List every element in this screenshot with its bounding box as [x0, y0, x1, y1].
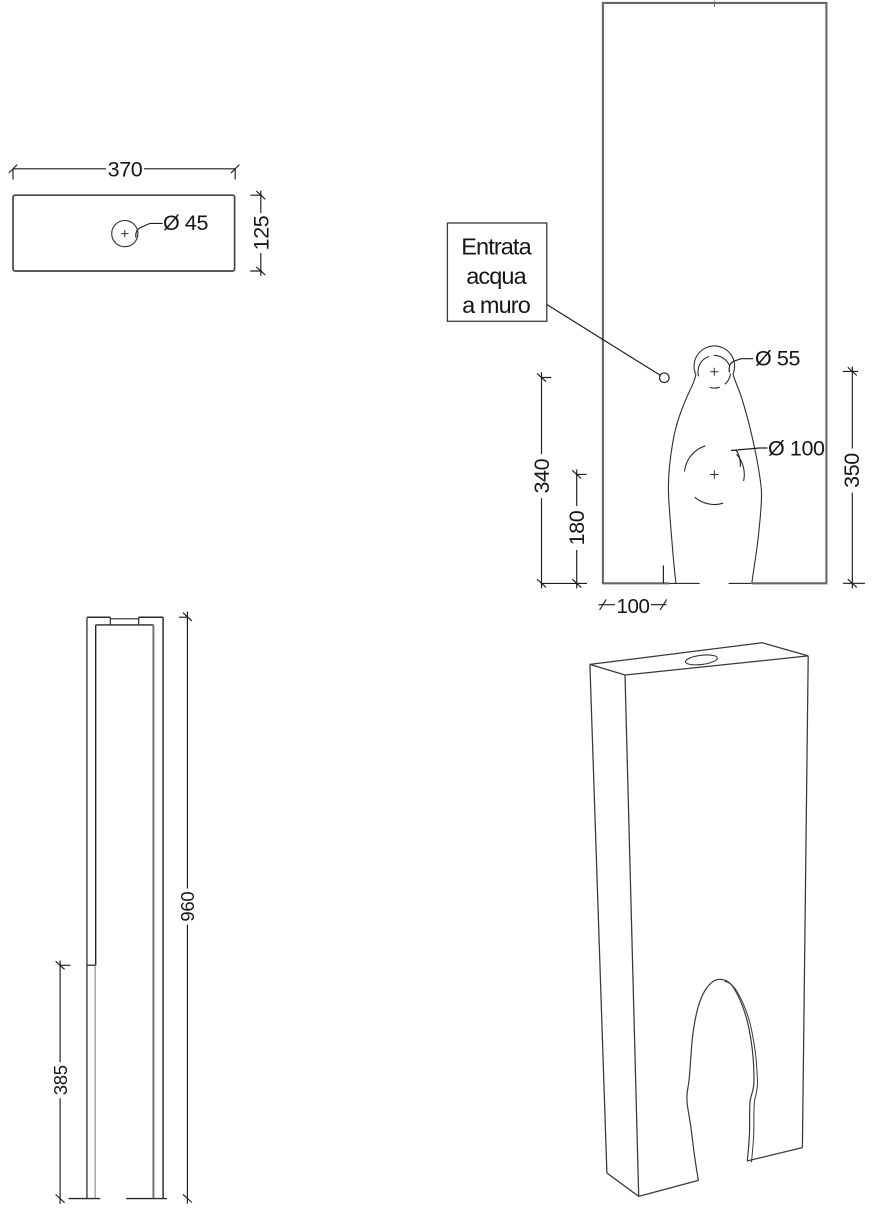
svg-text:acqua: acqua: [466, 263, 527, 289]
svg-text:100: 100: [616, 595, 649, 618]
svg-text:180: 180: [565, 510, 589, 545]
svg-text:340: 340: [530, 458, 554, 493]
svg-text:350: 350: [840, 453, 864, 488]
svg-text:385: 385: [50, 1065, 71, 1095]
svg-text:a muro: a muro: [462, 292, 531, 318]
svg-text:Ø 55: Ø 55: [755, 346, 800, 370]
svg-text:Ø 45: Ø 45: [163, 211, 208, 235]
svg-text:370: 370: [108, 157, 143, 181]
svg-text:125: 125: [249, 215, 273, 250]
svg-text:Ø 100: Ø 100: [768, 437, 825, 461]
svg-text:960: 960: [177, 892, 198, 922]
svg-text:Entrata: Entrata: [461, 234, 532, 260]
